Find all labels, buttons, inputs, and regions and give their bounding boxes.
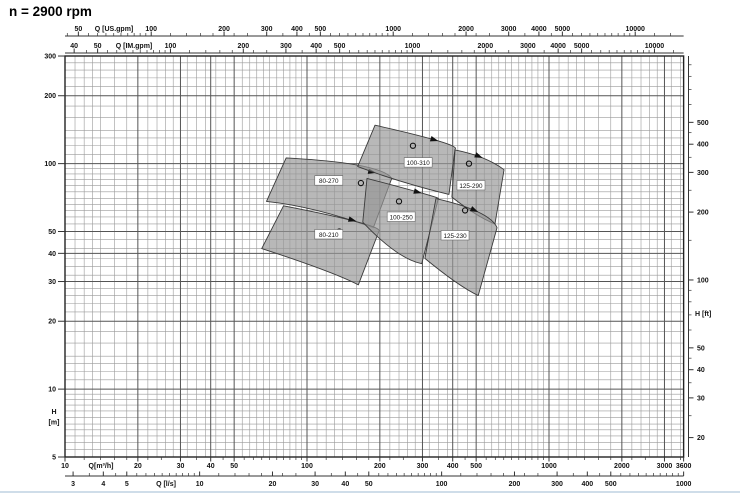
pump-selection-chart: 5010020030040050010002000300040005000100… xyxy=(0,0,740,494)
pump-chart-page: n = 2900 rpm 501002003004005001000200030… xyxy=(0,0,740,494)
envelope-label-125-290: 125-290 xyxy=(459,183,483,190)
tick-label-top_im_gpm: 4000 xyxy=(550,43,566,50)
envelope-label-100-250: 100-250 xyxy=(390,214,414,221)
tick-label-right-ft: 500 xyxy=(697,120,709,127)
tick-label-bottom_m3h: 10 xyxy=(61,463,69,470)
tick-label-top_us_gpm: 200 xyxy=(218,26,230,33)
axis-left-head-m: 51020304050100200300H[m] xyxy=(44,53,65,461)
tick-label-bottom_ls: 50 xyxy=(365,481,373,488)
tick-label-top_us_gpm: 400 xyxy=(291,26,303,33)
grid xyxy=(65,56,684,457)
tick-label-right-ft: 40 xyxy=(697,367,705,374)
tick-label-top_us_gpm: 4000 xyxy=(531,26,547,33)
tick-label-top_us_gpm: 3000 xyxy=(501,26,517,33)
tick-label-left-m: 200 xyxy=(44,93,56,100)
tick-label-bottom_ls: 10 xyxy=(196,481,204,488)
axis-title-bottom_m3h: Q[m³/h] xyxy=(89,463,114,470)
axis-top-im-gpm: 4050100200300400500100020003000400050001… xyxy=(65,43,684,53)
tick-label-bottom_m3h: 20 xyxy=(134,463,142,470)
tick-label-bottom_ls: 40 xyxy=(341,481,349,488)
tick-label-top_us_gpm: 5000 xyxy=(555,26,571,33)
axis-top-us-gpm: 5010020030040050010002000300040005000100… xyxy=(65,26,684,36)
tick-label-bottom_m3h: 30 xyxy=(177,463,185,470)
tick-label-bottom_ls: 500 xyxy=(605,481,617,488)
tick-label-bottom_m3h: 1000 xyxy=(541,463,557,470)
plot-frame xyxy=(65,56,684,457)
envelope-label-80-270: 80-270 xyxy=(319,178,339,185)
tick-label-left-m: 40 xyxy=(48,251,56,258)
tick-label-right-ft: 100 xyxy=(697,277,709,284)
axis-title-top_us_gpm: Q [US.gpm] xyxy=(95,26,134,33)
envelope-label-80-210: 80-210 xyxy=(319,232,339,239)
tick-label-top_im_gpm: 2000 xyxy=(478,43,494,50)
tick-label-right-ft: 400 xyxy=(697,142,709,149)
tick-label-left-m: 5 xyxy=(52,454,56,461)
tick-label-bottom_ls: 1000 xyxy=(676,481,692,488)
tick-label-bottom_ls: 4 xyxy=(101,481,105,488)
tick-label-bottom_m3h: 3600 xyxy=(676,463,692,470)
tick-label-top_im_gpm: 200 xyxy=(237,43,249,50)
axis-title-bottom_ls: Q [l/s] xyxy=(156,481,176,488)
tick-label-left-m: 50 xyxy=(48,229,56,236)
envelope-label-125-230: 125-230 xyxy=(443,233,467,240)
tick-label-right-ft: 300 xyxy=(697,170,709,177)
tick-label-top_im_gpm: 500 xyxy=(334,43,346,50)
tick-label-top_us_gpm: 300 xyxy=(261,26,273,33)
tick-label-top_us_gpm: 100 xyxy=(145,26,157,33)
tick-label-top_us_gpm: 10000 xyxy=(625,26,645,33)
tick-label-bottom_m3h: 2000 xyxy=(614,463,630,470)
tick-label-top_us_gpm: 1000 xyxy=(385,26,401,33)
tick-label-right-ft: 30 xyxy=(697,395,705,402)
tick-label-top_im_gpm: 40 xyxy=(70,43,78,50)
tick-label-top_im_gpm: 100 xyxy=(165,43,177,50)
tick-label-bottom_ls: 3 xyxy=(71,481,75,488)
tick-label-top_im_gpm: 300 xyxy=(280,43,292,50)
tick-label-top_im_gpm: 3000 xyxy=(520,43,536,50)
tick-label-top_im_gpm: 10000 xyxy=(645,43,665,50)
tick-label-left-m: 20 xyxy=(48,319,56,326)
tick-label-bottom_ls: 100 xyxy=(436,481,448,488)
tick-label-top_im_gpm: 50 xyxy=(94,43,102,50)
tick-label-bottom_ls: 200 xyxy=(509,481,521,488)
tick-label-bottom_ls: 300 xyxy=(551,481,563,488)
tick-label-top_us_gpm: 500 xyxy=(315,26,327,33)
axis-bottom-m3h: 1020304050100200300400500100020003000360… xyxy=(61,457,691,470)
axis-title-top_im_gpm: Q [IM.gpm] xyxy=(116,43,153,50)
tick-label-left-m: 30 xyxy=(48,279,56,286)
tick-label-bottom_m3h: 500 xyxy=(470,463,482,470)
axis-title-left-m: [m] xyxy=(49,420,60,427)
tick-label-right-ft: 20 xyxy=(697,435,705,442)
tick-label-top_im_gpm: 5000 xyxy=(574,43,590,50)
axis-right-head-ft: 20304050100200300400500H [ft] xyxy=(689,56,712,457)
axis-title-left-m: H xyxy=(51,409,56,416)
tick-label-left-m: 10 xyxy=(48,387,56,394)
envelope-label-100-310: 100-310 xyxy=(407,160,431,167)
tick-label-bottom_ls: 30 xyxy=(311,481,319,488)
tick-label-bottom_m3h: 50 xyxy=(230,463,238,470)
tick-label-bottom_m3h: 200 xyxy=(374,463,386,470)
tick-label-bottom_m3h: 100 xyxy=(301,463,313,470)
tick-label-bottom_ls: 400 xyxy=(581,481,593,488)
tick-label-top_us_gpm: 50 xyxy=(74,26,82,33)
tick-label-top_im_gpm: 1000 xyxy=(405,43,421,50)
tick-label-bottom_ls: 20 xyxy=(269,481,277,488)
tick-label-bottom_ls: 5 xyxy=(125,481,129,488)
tick-label-top_us_gpm: 2000 xyxy=(458,26,474,33)
tick-label-bottom_m3h: 400 xyxy=(447,463,459,470)
tick-label-bottom_m3h: 40 xyxy=(207,463,215,470)
window-bottom-border xyxy=(0,491,740,493)
tick-label-left-m: 300 xyxy=(44,53,56,60)
axis-bottom-ls: 34510203040501002003004005001000Q [l/s] xyxy=(65,472,692,489)
tick-label-right-ft: 200 xyxy=(697,209,709,216)
tick-label-bottom_m3h: 300 xyxy=(417,463,429,470)
axis-title-right-ft: H [ft] xyxy=(695,311,711,318)
tick-label-top_im_gpm: 400 xyxy=(310,43,322,50)
tick-label-right-ft: 50 xyxy=(697,345,705,352)
tick-label-left-m: 100 xyxy=(44,161,56,168)
tick-label-bottom_m3h: 3000 xyxy=(657,463,673,470)
